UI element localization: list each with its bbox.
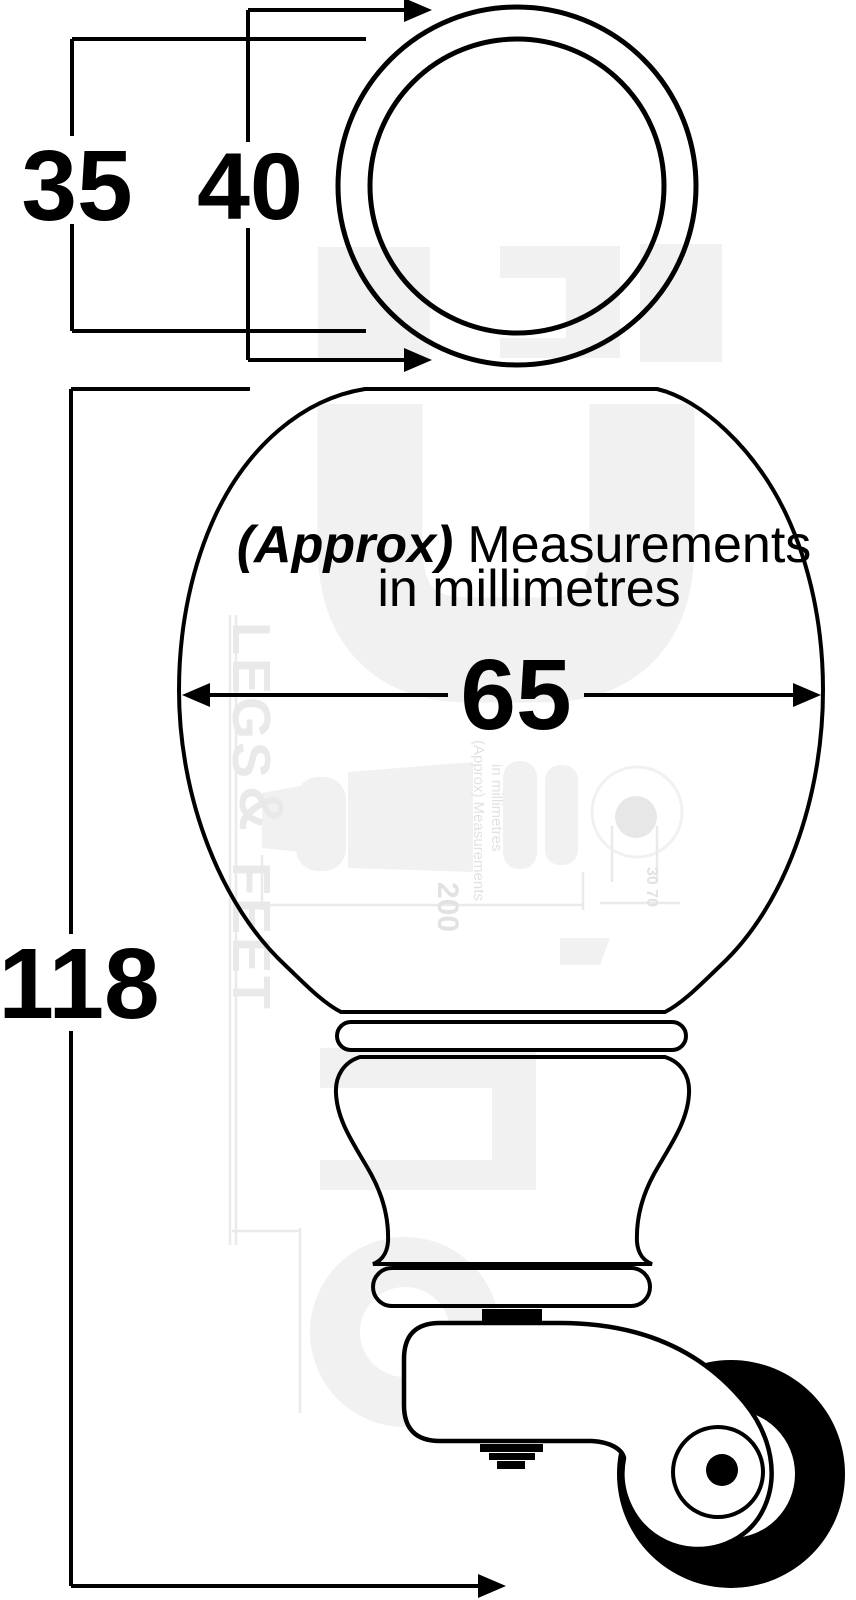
- diagram-canvas: (Approx) Measurements in millimetres 200…: [0, 0, 856, 1600]
- dim-label-total-height: 118: [0, 928, 160, 1040]
- watermark-brand-feet: FEET: [221, 862, 281, 1012]
- bun-foot-castor-technical-drawing: (Approx) Measurements in millimetres 200…: [0, 0, 856, 1600]
- watermark-brand-ampersand: &: [226, 786, 295, 834]
- ghost-dim-wheel-label: 30 70: [643, 867, 660, 907]
- castor-screw-thread: [480, 1444, 543, 1452]
- dim-label-inner-diameter: 35: [21, 130, 132, 242]
- watermark-letter-fragment: [318, 247, 430, 361]
- ghost-note-line1: (Approx) Measurements: [470, 740, 487, 901]
- castor-screw-thread: [489, 1453, 535, 1460]
- ghost-wheel-hub: [615, 796, 657, 838]
- castor-screw-thread: [497, 1461, 525, 1469]
- ghost-leg-collar: [503, 761, 537, 869]
- watermark-brand-legs: LEGS: [221, 622, 281, 781]
- dim-label-outer-diameter: 40: [197, 134, 303, 240]
- ghost-note-line2: in millimetres: [488, 764, 505, 852]
- measurement-note-line2: in millimetres: [377, 560, 680, 618]
- dim-label-ball-width: 65: [460, 639, 571, 751]
- ghost-dim-length-label: 200: [431, 882, 464, 932]
- ghost-leg-knob: [296, 777, 346, 871]
- watermark-letter-fragment: [492, 1050, 536, 1190]
- castor-axle-hub: [706, 1454, 738, 1486]
- ghost-leg-collar: [545, 765, 578, 865]
- ghost-leg-cone: [348, 762, 473, 872]
